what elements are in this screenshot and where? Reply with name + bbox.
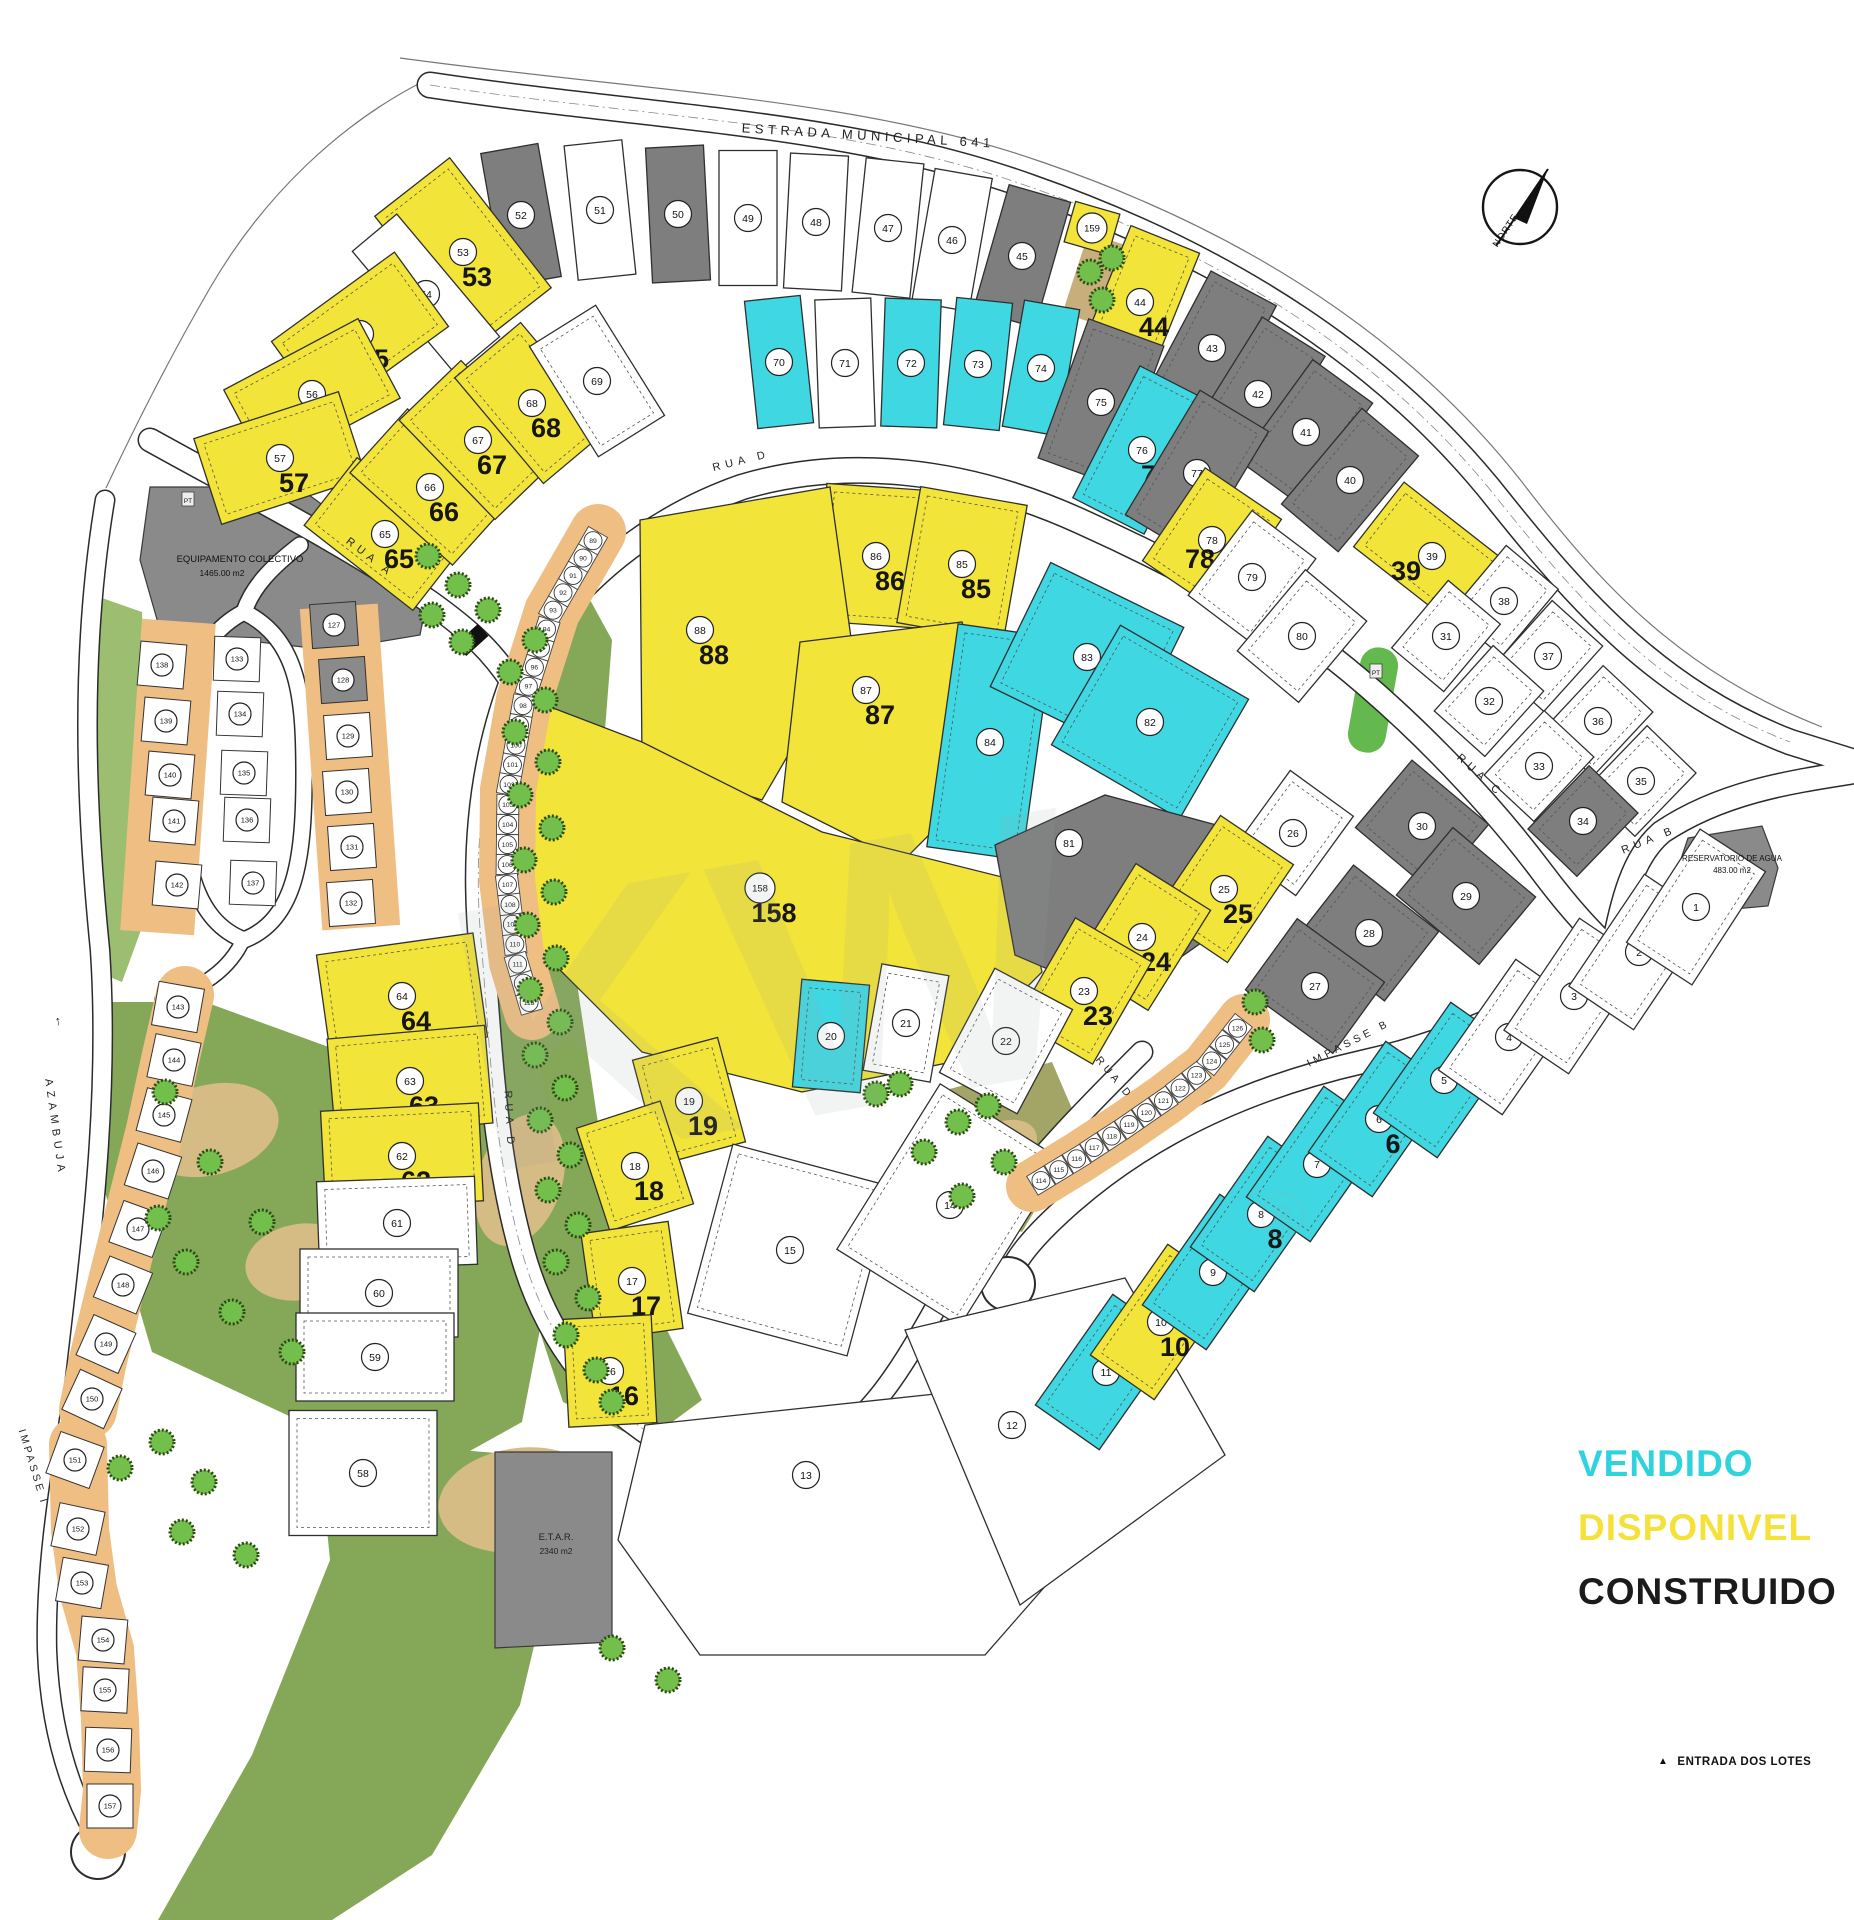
tree-icon [544, 1250, 568, 1274]
townhouse-130: 130 [323, 768, 372, 815]
svg-text:34: 34 [1577, 816, 1589, 828]
equipamento-label: EQUIPAMENTO COLECTIVO [177, 554, 304, 565]
townhouse-136: 136 [223, 797, 271, 843]
svg-text:65: 65 [379, 529, 391, 541]
tree-icon [498, 660, 522, 684]
entrance-note: ▲ ENTRADA DOS LOTES [1658, 1756, 1811, 1768]
svg-text:68: 68 [526, 398, 538, 410]
svg-text:149: 149 [100, 1340, 113, 1349]
svg-text:12: 12 [1006, 1420, 1018, 1432]
north-arrow: NORTE [1483, 169, 1557, 249]
svg-text:48: 48 [810, 217, 822, 229]
svg-text:114: 114 [1036, 1178, 1047, 1185]
svg-text:41: 41 [1300, 427, 1312, 439]
tree-icon [508, 783, 532, 807]
svg-text:124: 124 [1206, 1058, 1218, 1065]
svg-text:85: 85 [956, 559, 968, 571]
svg-text:63: 63 [404, 1076, 416, 1088]
svg-text:150: 150 [86, 1395, 99, 1404]
townhouse-129: 129 [324, 712, 373, 759]
svg-text:87: 87 [865, 700, 895, 730]
svg-text:82: 82 [1144, 717, 1156, 729]
svg-text:25: 25 [1223, 899, 1253, 929]
svg-text:2340 m2: 2340 m2 [539, 1546, 572, 1556]
tree-icon [1250, 1028, 1274, 1052]
svg-text:126: 126 [1232, 1026, 1244, 1033]
svg-text:38: 38 [1498, 596, 1510, 608]
tree-icon [1100, 246, 1124, 270]
svg-text:47: 47 [882, 223, 894, 235]
svg-text:3: 3 [1571, 991, 1577, 1003]
svg-text:128: 128 [337, 676, 350, 685]
plot-47: 47 [852, 158, 924, 298]
tree-icon [950, 1184, 974, 1208]
svg-text:74: 74 [1035, 363, 1047, 375]
svg-text:155: 155 [99, 1686, 112, 1695]
townhouse-156: 156 [84, 1727, 132, 1773]
townhouse-139: 139 [141, 697, 191, 745]
svg-text:25: 25 [1218, 884, 1230, 896]
tree-icon [192, 1470, 216, 1494]
svg-text:87: 87 [860, 685, 872, 697]
svg-text:39: 39 [1426, 551, 1438, 563]
svg-text:98: 98 [519, 703, 527, 710]
svg-text:5: 5 [1441, 1075, 1447, 1087]
svg-text:61: 61 [391, 1218, 403, 1230]
svg-text:151: 151 [69, 1456, 82, 1465]
svg-text:59: 59 [369, 1352, 381, 1364]
svg-text:24: 24 [1136, 932, 1148, 944]
svg-text:60: 60 [373, 1288, 385, 1300]
svg-text:36: 36 [1592, 716, 1604, 728]
tree-icon [234, 1543, 258, 1567]
townhouse-132: 132 [327, 879, 376, 926]
svg-text:91: 91 [569, 573, 577, 580]
townhouse-134: 134 [216, 691, 264, 737]
svg-text:68: 68 [531, 413, 561, 443]
tree-icon [1243, 990, 1267, 1014]
svg-text:130: 130 [341, 788, 354, 797]
svg-text:53: 53 [462, 262, 492, 292]
tree-icon [250, 1210, 274, 1234]
tree-icon [450, 630, 474, 654]
svg-text:80: 80 [1296, 631, 1308, 643]
svg-text:1: 1 [1693, 902, 1699, 914]
svg-text:86: 86 [870, 551, 882, 563]
svg-text:147: 147 [132, 1225, 145, 1234]
svg-text:71: 71 [839, 358, 851, 370]
tree-icon [600, 1390, 624, 1414]
svg-text:52: 52 [515, 210, 527, 222]
svg-text:44: 44 [1139, 312, 1169, 342]
svg-text:46: 46 [946, 235, 958, 247]
tree-icon [503, 720, 527, 744]
svg-text:97: 97 [525, 684, 533, 691]
tree-icon [220, 1300, 244, 1324]
svg-text:58: 58 [357, 1468, 369, 1480]
townhouse-143: 143 [152, 981, 205, 1032]
svg-text:50: 50 [672, 209, 684, 221]
svg-text:42: 42 [1252, 389, 1264, 401]
legend-item-vendido: VENDIDO [1578, 1432, 1837, 1496]
svg-text:13: 13 [800, 1470, 812, 1482]
plot-48: 48 [784, 153, 849, 291]
svg-text:26: 26 [1287, 828, 1299, 840]
svg-text:140: 140 [164, 771, 177, 780]
svg-text:137: 137 [247, 879, 260, 888]
svg-text:73: 73 [972, 359, 984, 371]
svg-text:96: 96 [531, 665, 539, 672]
townhouse-127: 127 [310, 601, 359, 648]
townhouse-140: 140 [145, 751, 195, 799]
legend-item-disponivel: DISPONIVEL [1578, 1496, 1837, 1560]
svg-text:127: 127 [328, 621, 341, 630]
svg-text:15: 15 [784, 1245, 796, 1257]
svg-text:115: 115 [1053, 1167, 1064, 1174]
svg-text:81: 81 [1063, 838, 1075, 850]
svg-text:152: 152 [72, 1525, 85, 1534]
townhouse-138: 138 [137, 641, 187, 689]
svg-text:9: 9 [1210, 1267, 1216, 1279]
svg-text:7: 7 [1314, 1159, 1320, 1171]
svg-text:131: 131 [346, 843, 359, 852]
svg-text:116: 116 [1071, 1156, 1082, 1163]
svg-text:142: 142 [171, 881, 184, 890]
tree-icon [600, 1636, 624, 1660]
svg-text:28: 28 [1363, 928, 1375, 940]
site-plan: 5251504948474645159444443424140535354555… [0, 0, 1854, 1920]
plot-51: 51 [564, 140, 636, 280]
svg-text:R: R [1274, 1200, 1293, 1230]
svg-text:35: 35 [1635, 776, 1647, 788]
svg-text:64: 64 [396, 991, 408, 1003]
azambuja-arrow: ← [52, 1014, 69, 1029]
svg-text:120: 120 [1141, 1110, 1153, 1117]
plot-49: 49 [719, 151, 777, 286]
svg-text:39: 39 [1391, 556, 1421, 586]
townhouse-153: 153 [56, 1557, 109, 1608]
svg-text:133: 133 [231, 655, 244, 664]
svg-text:31: 31 [1440, 631, 1452, 643]
tree-icon [108, 1456, 132, 1480]
svg-text:32: 32 [1483, 696, 1495, 708]
svg-text:89: 89 [589, 538, 597, 545]
svg-text:33: 33 [1533, 761, 1545, 773]
svg-text:143: 143 [172, 1003, 185, 1012]
svg-text:29: 29 [1460, 891, 1472, 903]
svg-text:157: 157 [104, 1802, 117, 1811]
tree-icon [1078, 260, 1102, 284]
svg-text:86: 86 [875, 566, 905, 596]
svg-text:45: 45 [1016, 251, 1028, 263]
svg-text:49: 49 [742, 213, 754, 225]
plot-70: 70 [744, 295, 813, 428]
plot-59: 59 [296, 1313, 454, 1401]
svg-text:123: 123 [1191, 1073, 1203, 1080]
svg-text:30: 30 [1416, 821, 1428, 833]
townhouse-155: 155 [81, 1667, 129, 1713]
plot-72: 72 [881, 298, 941, 428]
svg-text:125: 125 [1219, 1042, 1231, 1049]
townhouse-144: 144 [147, 1034, 201, 1087]
svg-text:66: 66 [429, 497, 459, 527]
svg-text:483.00 m2: 483.00 m2 [1713, 866, 1751, 875]
svg-text:144: 144 [168, 1056, 181, 1065]
svg-text:27: 27 [1309, 981, 1321, 993]
svg-text:17: 17 [626, 1276, 638, 1288]
svg-text:92: 92 [559, 590, 567, 597]
tree-icon [554, 1323, 578, 1347]
svg-text:69: 69 [591, 376, 603, 388]
svg-text:53: 53 [457, 247, 469, 259]
tree-icon [536, 750, 560, 774]
tree-icon [174, 1250, 198, 1274]
entrance-icon: ▲ [1658, 1757, 1668, 1767]
road-label-impasse_i: IMPASSE I [16, 1428, 50, 1507]
svg-text:138: 138 [156, 661, 169, 670]
svg-text:135: 135 [238, 769, 251, 778]
tree-icon [198, 1150, 222, 1174]
svg-text:134: 134 [234, 710, 247, 719]
plot-58: 58 [289, 1411, 437, 1536]
tree-icon [656, 1668, 680, 1692]
svg-text:66: 66 [424, 482, 436, 494]
svg-text:62: 62 [396, 1151, 408, 1163]
svg-text:145: 145 [158, 1111, 171, 1120]
svg-text:75: 75 [1095, 397, 1107, 409]
svg-text:1465.00 m2: 1465.00 m2 [200, 568, 245, 578]
tree-icon [416, 544, 440, 568]
townhouse-154: 154 [78, 1616, 128, 1664]
svg-text:156: 156 [102, 1746, 115, 1755]
townhouse-131: 131 [328, 823, 377, 870]
tree-icon [153, 1080, 177, 1104]
townhouse-157: 157 [87, 1784, 133, 1828]
site-plan-map: 5251504948474645159444443424140535354555… [0, 0, 1854, 1920]
townhouse-133: 133 [213, 636, 261, 682]
svg-text:83: 83 [1081, 652, 1093, 664]
svg-text:129: 129 [342, 732, 355, 741]
svg-text:70: 70 [773, 357, 785, 369]
tree-icon [1090, 288, 1114, 312]
svg-text:10: 10 [1160, 1332, 1190, 1362]
etar-label: E.T.A.R. [539, 1532, 574, 1543]
tree-icon [170, 1520, 194, 1544]
legend-item-construido: CONSTRUIDO [1578, 1560, 1837, 1624]
svg-text:67: 67 [472, 435, 484, 447]
tree-icon [523, 628, 547, 652]
svg-text:153: 153 [76, 1579, 89, 1588]
tree-icon [146, 1206, 170, 1230]
townhouse-135: 135 [220, 750, 268, 796]
tree-icon [280, 1340, 304, 1364]
svg-text:85: 85 [961, 574, 991, 604]
svg-text:57: 57 [274, 453, 286, 465]
svg-text:79: 79 [1246, 572, 1258, 584]
svg-text:132: 132 [345, 899, 358, 908]
plot-73: 73 [943, 297, 1012, 430]
svg-text:148: 148 [117, 1281, 130, 1290]
svg-text:136: 136 [241, 816, 254, 825]
tree-icon [576, 1286, 600, 1310]
svg-text:146: 146 [147, 1167, 160, 1176]
svg-text:44: 44 [1134, 297, 1146, 309]
svg-text:43: 43 [1206, 343, 1218, 355]
svg-text:154: 154 [97, 1636, 110, 1645]
svg-text:119: 119 [1124, 1122, 1135, 1129]
svg-text:PT: PT [184, 498, 192, 505]
svg-text:57: 57 [279, 468, 309, 498]
svg-text:40: 40 [1344, 475, 1356, 487]
svg-text:72: 72 [905, 358, 917, 370]
tree-icon [476, 598, 500, 622]
svg-text:141: 141 [168, 817, 181, 826]
townhouse-152: 152 [51, 1503, 105, 1556]
plot-85: 8585 [897, 487, 1027, 642]
townhouse-141: 141 [149, 797, 199, 845]
townhouse-128: 128 [319, 656, 368, 703]
tree-icon [150, 1430, 174, 1454]
svg-text:51: 51 [594, 205, 606, 217]
tree-icon [420, 603, 444, 627]
tree-icon [533, 688, 557, 712]
svg-text:6: 6 [1385, 1129, 1400, 1159]
svg-text:101: 101 [507, 762, 519, 769]
tree-icon [446, 573, 470, 597]
plot-71: 71 [815, 298, 875, 428]
svg-text:139: 139 [160, 717, 173, 726]
svg-text:37: 37 [1542, 651, 1554, 663]
svg-text:93: 93 [549, 608, 557, 615]
townhouse-142: 142 [152, 861, 202, 909]
tree-icon [584, 1358, 608, 1382]
svg-text:76: 76 [1136, 445, 1148, 457]
plot-50: 50 [646, 145, 711, 283]
svg-text:90: 90 [579, 555, 587, 562]
townhouse-137: 137 [229, 860, 277, 906]
svg-text:88: 88 [694, 625, 706, 637]
svg-text:122: 122 [1174, 1085, 1186, 1092]
svg-text:PT: PT [1372, 670, 1380, 677]
legend: VENDIDO DISPONIVEL CONSTRUIDO [1578, 1432, 1837, 1624]
svg-text:159: 159 [1084, 223, 1100, 234]
svg-text:67: 67 [477, 450, 507, 480]
svg-text:88: 88 [699, 640, 729, 670]
entrance-label: ENTRADA DOS LOTES [1677, 1756, 1811, 1768]
road-label-azambuja: AZAMBUJA [42, 1078, 68, 1177]
svg-text:121: 121 [1158, 1098, 1170, 1105]
reservatorio-label: RESERVATORIO DE AGUA [1682, 854, 1783, 863]
